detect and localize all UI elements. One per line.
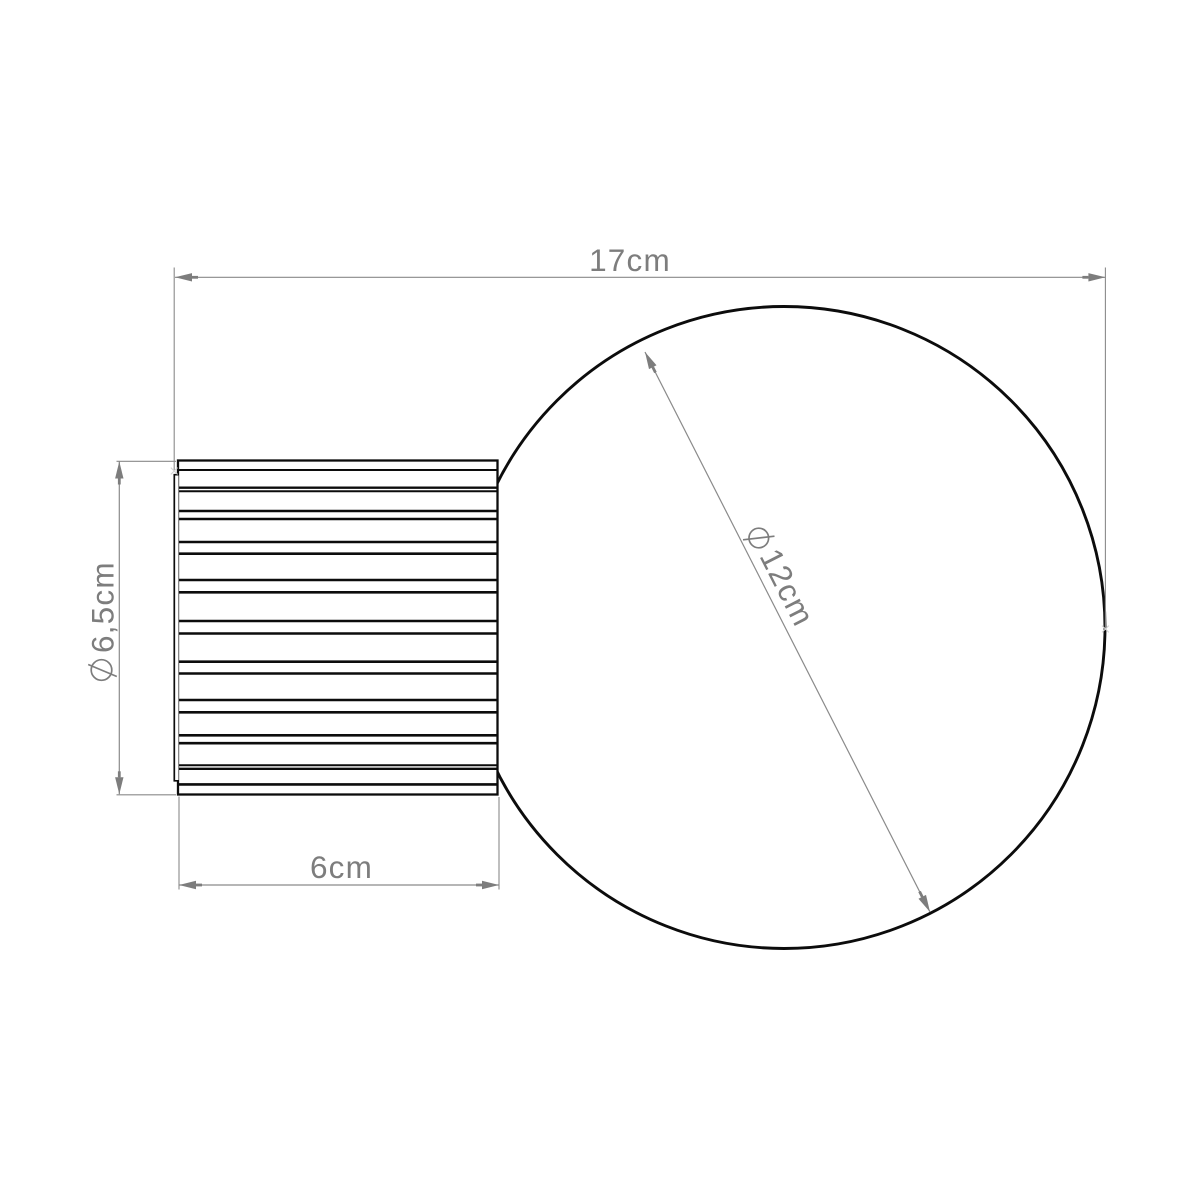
svg-text:6cm: 6cm	[310, 849, 373, 885]
svg-text:6,5cm: 6,5cm	[85, 561, 121, 653]
svg-text:17cm: 17cm	[589, 242, 671, 278]
